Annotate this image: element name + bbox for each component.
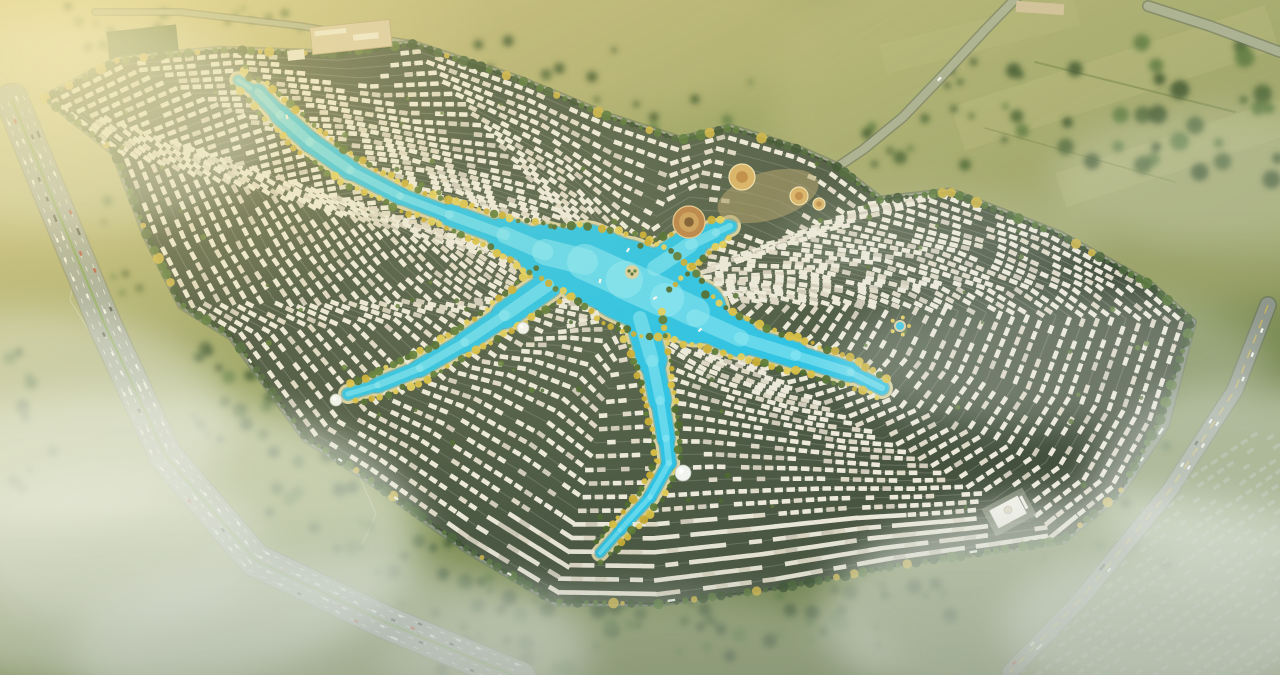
aerial-masterplan-render bbox=[0, 0, 1280, 675]
scene-canvas bbox=[0, 0, 1280, 675]
color-grade bbox=[0, 0, 1280, 675]
